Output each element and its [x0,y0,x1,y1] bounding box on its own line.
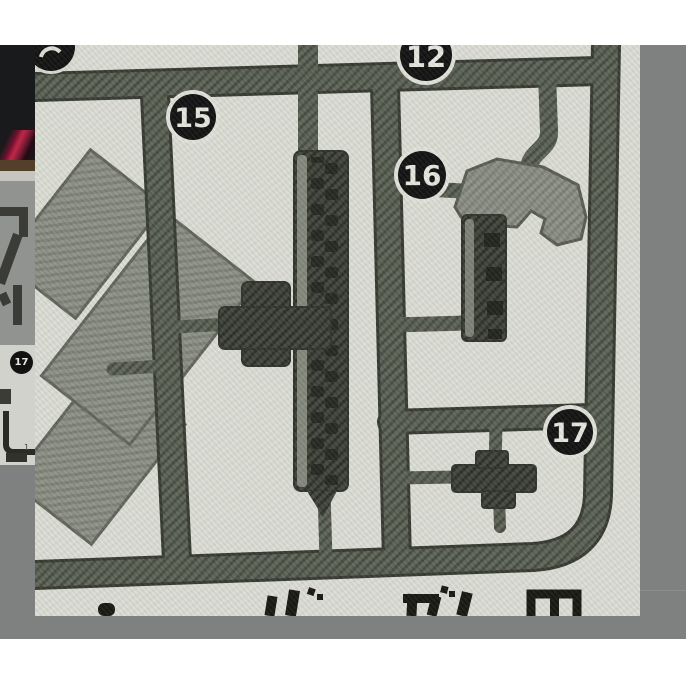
thumb-rounded-frame-corner [3,411,39,455]
thumb-red-streaks [0,130,35,160]
thumb-part-badge: 17 [10,351,33,374]
caption-glyph-fragments [98,585,577,616]
sprue-drawing: 15 12 16 17 [35,45,640,616]
previous-image-thumbnail[interactable]: 17 1 [0,45,35,639]
thumb-small-square [0,389,11,404]
product-photo-sprue[interactable]: 15 12 16 17 [35,45,640,616]
thumb-small-bar [6,453,27,462]
part-number-badge-16: 16 [394,147,450,203]
thumb-light-strip [0,171,35,181]
gray-background-seam [640,590,686,591]
small-fitting-part [452,451,536,508]
ma-glyph-diagonal [0,233,23,285]
part-number-badge-partial [35,45,78,74]
svg-text:15: 15 [174,103,212,134]
thumb-gray-panel [0,181,35,345]
gun-shaped-part [455,159,586,341]
svg-text:12: 12 [406,45,446,74]
page: { "page": { "background_color": "#ffffff… [0,0,686,686]
ma-glyph-fork-vert [13,285,22,325]
thumb-dark-area [0,45,35,140]
thumb-brown-line [0,160,35,171]
image-carousel-viewport: 17 1 [0,45,686,639]
thumb-card-mark: 1 [24,443,29,452]
svg-text:17: 17 [551,418,589,449]
svg-text:16: 16 [403,159,442,192]
part-number-badge-15: 15 [166,90,220,144]
ma-glyph-right-bar [19,207,28,237]
thumb-card-area: 17 1 [0,345,35,465]
ma-glyph-fork-branch [0,292,11,307]
part-number-badge-17: 17 [543,405,597,459]
